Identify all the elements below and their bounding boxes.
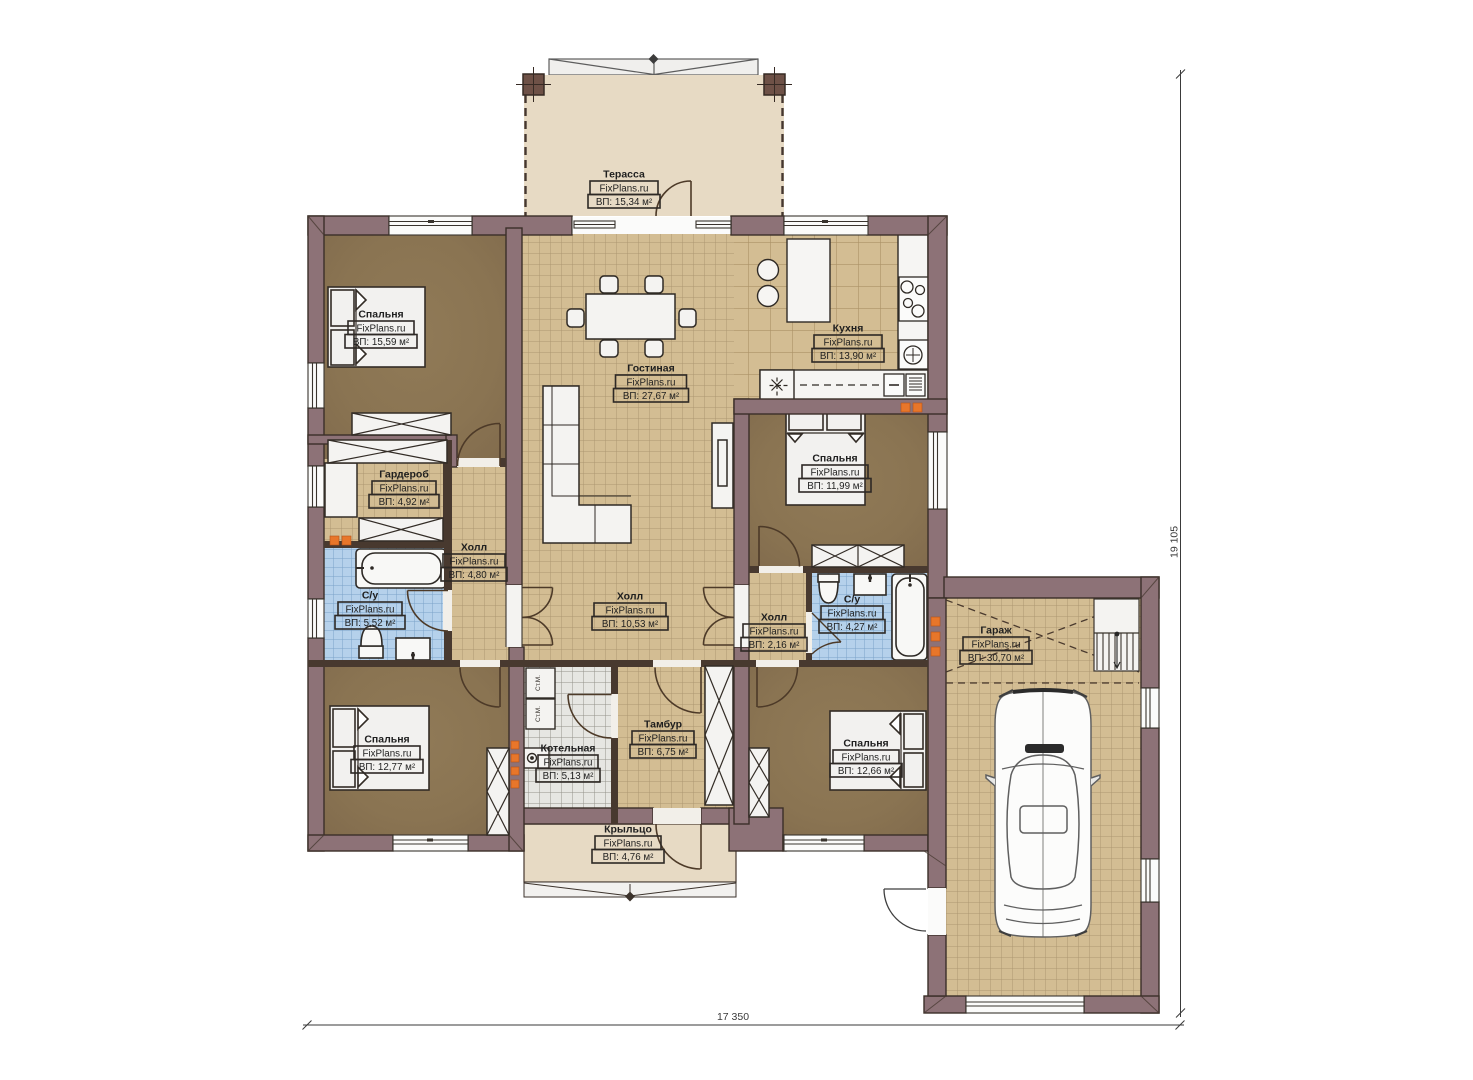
svg-text:FixPlans.ru: FixPlans.ru [627, 377, 676, 388]
svg-text:FixPlans.ru: FixPlans.ru [604, 838, 653, 849]
svg-text:С/у: С/у [362, 590, 379, 602]
svg-text:Тамбур: Тамбур [644, 719, 682, 731]
svg-text:FixPlans.ru: FixPlans.ru [811, 467, 860, 478]
svg-text:ВП: 6,75 м²: ВП: 6,75 м² [638, 747, 690, 758]
svg-text:Гараж: Гараж [980, 625, 1012, 637]
svg-text:ВП: 4,80 м²: ВП: 4,80 м² [449, 570, 501, 581]
svg-text:Ст.М.: Ст.М. [535, 706, 542, 722]
svg-text:17 350: 17 350 [717, 1011, 749, 1023]
svg-text:Спальня: Спальня [364, 734, 409, 746]
svg-text:FixPlans.ru: FixPlans.ru [363, 748, 412, 759]
svg-text:Гостиная: Гостиная [627, 363, 674, 375]
svg-text:ВП: 12,66 м²: ВП: 12,66 м² [838, 766, 895, 777]
svg-text:Спальня: Спальня [843, 738, 888, 750]
svg-text:19 105: 19 105 [1169, 526, 1181, 558]
svg-text:Терасса: Терасса [603, 169, 645, 181]
svg-text:Кухня: Кухня [833, 323, 864, 335]
svg-text:ВП: 12,77 м²: ВП: 12,77 м² [359, 762, 416, 773]
svg-text:Спальня: Спальня [812, 453, 857, 465]
svg-text:ВП: 11,99 м²: ВП: 11,99 м² [807, 481, 863, 492]
svg-text:Гардероб: Гардероб [379, 469, 429, 481]
svg-text:ВП: 13,90 м²: ВП: 13,90 м² [820, 351, 877, 362]
svg-text:Ст.М.: Ст.М. [535, 675, 542, 691]
svg-text:Крыльцо: Крыльцо [604, 824, 652, 836]
svg-text:FixPlans.ru: FixPlans.ru [824, 337, 873, 348]
svg-text:ВП: 30,70 м²: ВП: 30,70 м² [968, 653, 1025, 664]
svg-text:FixPlans.ru: FixPlans.ru [357, 323, 406, 334]
svg-text:FixPlans.ru: FixPlans.ru [346, 604, 395, 615]
svg-text:FixPlans.ru: FixPlans.ru [380, 483, 429, 494]
svg-text:ВП: 5,52 м²: ВП: 5,52 м² [345, 618, 397, 629]
svg-text:ВП: 10,53 м²: ВП: 10,53 м² [602, 619, 659, 630]
svg-text:ВП: 2,16 м²: ВП: 2,16 м² [749, 640, 801, 651]
svg-text:ВП: 27,67 м²: ВП: 27,67 м² [623, 391, 680, 402]
svg-text:FixPlans.ru: FixPlans.ru [606, 605, 655, 616]
svg-text:FixPlans.ru: FixPlans.ru [828, 608, 877, 619]
svg-text:FixPlans.ru: FixPlans.ru [544, 757, 593, 768]
svg-text:FixPlans.ru: FixPlans.ru [972, 639, 1021, 650]
svg-text:С/у: С/у [844, 594, 861, 606]
svg-text:FixPlans.ru: FixPlans.ru [600, 183, 649, 194]
svg-text:ВП: 5,13 м²: ВП: 5,13 м² [543, 771, 595, 782]
svg-text:FixPlans.ru: FixPlans.ru [639, 733, 688, 744]
svg-text:Котельная: Котельная [541, 743, 596, 755]
svg-text:Спальня: Спальня [358, 309, 403, 321]
svg-text:ВП: 15,59 м²: ВП: 15,59 м² [353, 337, 410, 348]
svg-text:ВП: 4,27 м²: ВП: 4,27 м² [827, 622, 879, 633]
svg-text:ВП: 4,92 м²: ВП: 4,92 м² [379, 497, 431, 508]
svg-text:Холл: Холл [617, 591, 643, 603]
svg-text:FixPlans.ru: FixPlans.ru [842, 752, 891, 763]
svg-text:ВП: 15,34 м²: ВП: 15,34 м² [596, 197, 653, 208]
svg-text:FixPlans.ru: FixPlans.ru [750, 626, 799, 637]
svg-text:Холл: Холл [761, 612, 787, 624]
svg-text:ВП: 4,76 м²: ВП: 4,76 м² [603, 852, 655, 863]
svg-text:Холл: Холл [461, 542, 487, 554]
svg-text:FixPlans.ru: FixPlans.ru [450, 556, 499, 567]
